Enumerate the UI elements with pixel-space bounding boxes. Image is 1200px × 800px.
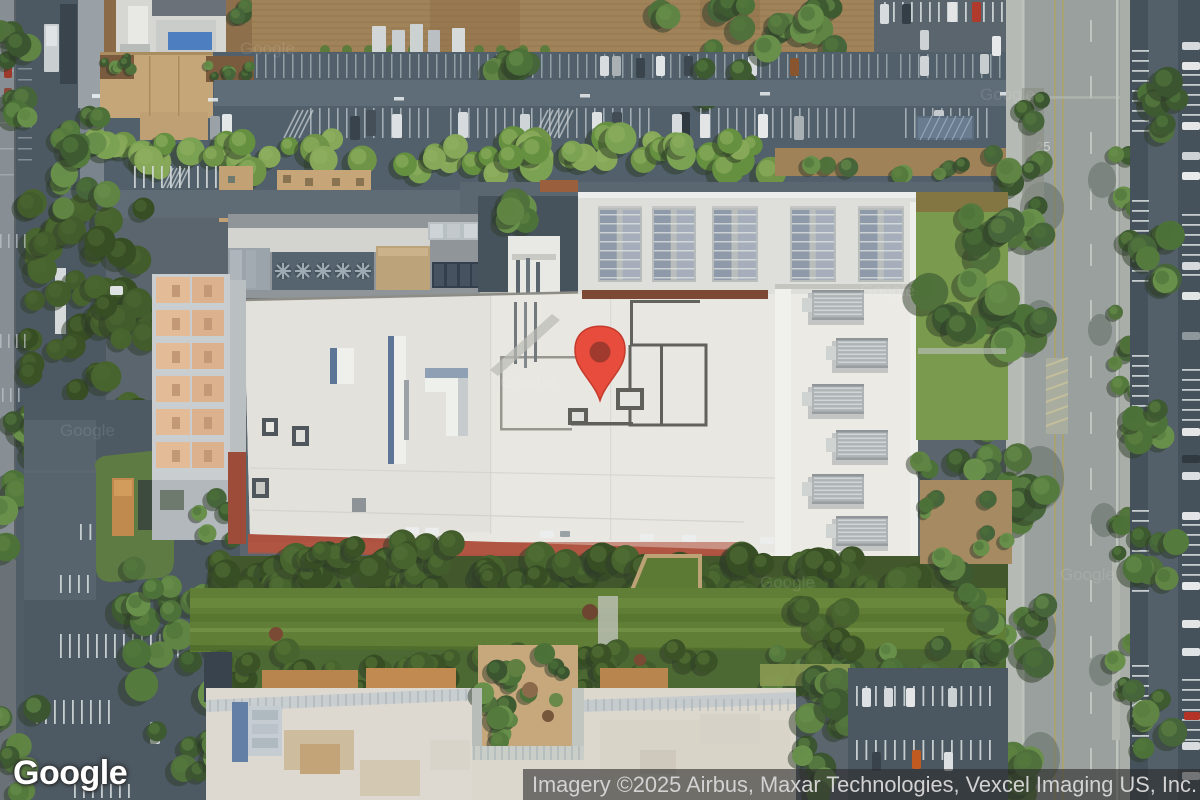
svg-text:Google: Google xyxy=(500,373,555,392)
svg-text:Google: Google xyxy=(240,39,295,58)
svg-text:Google: Google xyxy=(1060,565,1115,584)
svg-text:Google: Google xyxy=(980,85,1035,104)
svg-text:Google: Google xyxy=(60,421,115,440)
svg-text:Google: Google xyxy=(760,573,815,592)
svg-text:Google: Google xyxy=(860,281,915,300)
